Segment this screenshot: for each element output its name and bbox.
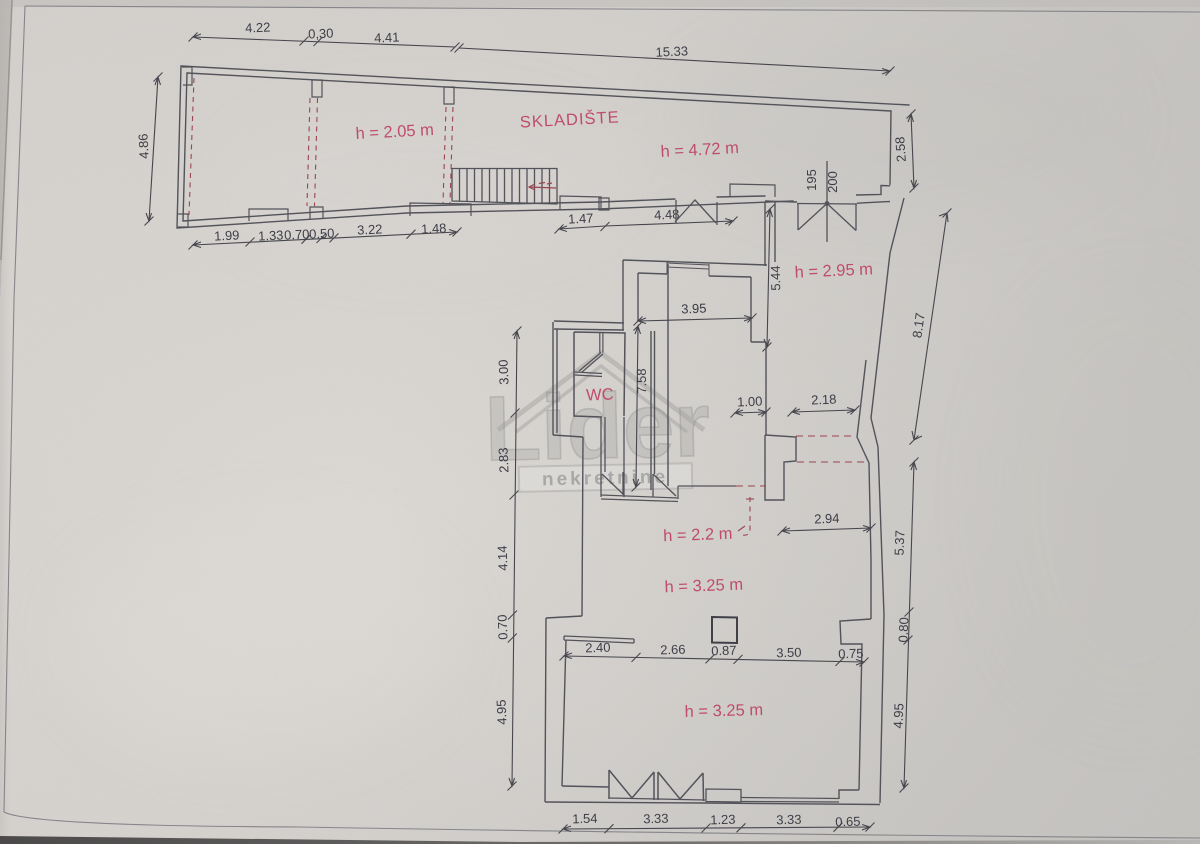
svg-text:3.22: 3.22 (357, 221, 383, 237)
svg-text:4.86: 4.86 (135, 133, 151, 159)
svg-text:15.33: 15.33 (655, 43, 688, 59)
svg-text:4.95: 4.95 (891, 703, 907, 729)
svg-text:0.80: 0.80 (896, 617, 912, 643)
svg-text:WC: WC (586, 386, 614, 405)
svg-text:1.48: 1.48 (421, 220, 447, 236)
svg-text:1.54: 1.54 (572, 811, 598, 827)
svg-text:2.18: 2.18 (811, 391, 837, 407)
svg-text:3.00: 3.00 (496, 359, 512, 385)
svg-text:2.94: 2.94 (814, 511, 840, 527)
svg-text:1.47: 1.47 (568, 210, 594, 226)
svg-text:0.65: 0.65 (835, 814, 861, 830)
svg-text:3.33: 3.33 (643, 811, 669, 827)
svg-text:1.33: 1.33 (258, 227, 284, 243)
svg-text:3.33: 3.33 (776, 812, 802, 828)
svg-text:0.70: 0.70 (284, 226, 310, 242)
svg-text:0,30: 0,30 (308, 25, 334, 41)
svg-text:200: 200 (825, 171, 840, 193)
svg-text:h = 2.95 m: h = 2.95 m (794, 260, 873, 281)
svg-text:1.23: 1.23 (710, 812, 736, 828)
svg-text:0.70: 0.70 (495, 614, 511, 640)
svg-text:1.99: 1.99 (214, 227, 240, 243)
svg-text:4.95: 4.95 (494, 699, 510, 725)
svg-text:h = 3.25 m: h = 3.25 m (664, 576, 743, 597)
svg-text:2.58: 2.58 (892, 136, 909, 162)
svg-text:4.22: 4.22 (245, 19, 271, 35)
svg-text:195: 195 (804, 169, 819, 191)
svg-text:2.66: 2.66 (660, 642, 686, 658)
svg-text:4.41: 4.41 (374, 29, 400, 45)
svg-text:5.44: 5.44 (768, 265, 783, 291)
svg-text:1.00: 1.00 (737, 393, 763, 409)
svg-text:0.50: 0.50 (309, 225, 335, 241)
svg-text:2.40: 2.40 (585, 640, 611, 656)
svg-text:h = 3.25 m: h = 3.25 m (684, 701, 763, 721)
svg-text:2.83: 2.83 (496, 447, 512, 473)
svg-text:7.58: 7.58 (634, 368, 649, 394)
svg-text:0.75: 0.75 (838, 646, 864, 662)
svg-text:4.14: 4.14 (495, 545, 511, 571)
svg-text:h = 2.2 m: h = 2.2 m (663, 525, 733, 545)
svg-text:3.50: 3.50 (776, 645, 802, 661)
svg-text:3.95: 3.95 (681, 301, 707, 317)
svg-text:5.37: 5.37 (892, 530, 908, 556)
svg-text:0.87: 0.87 (711, 643, 737, 659)
